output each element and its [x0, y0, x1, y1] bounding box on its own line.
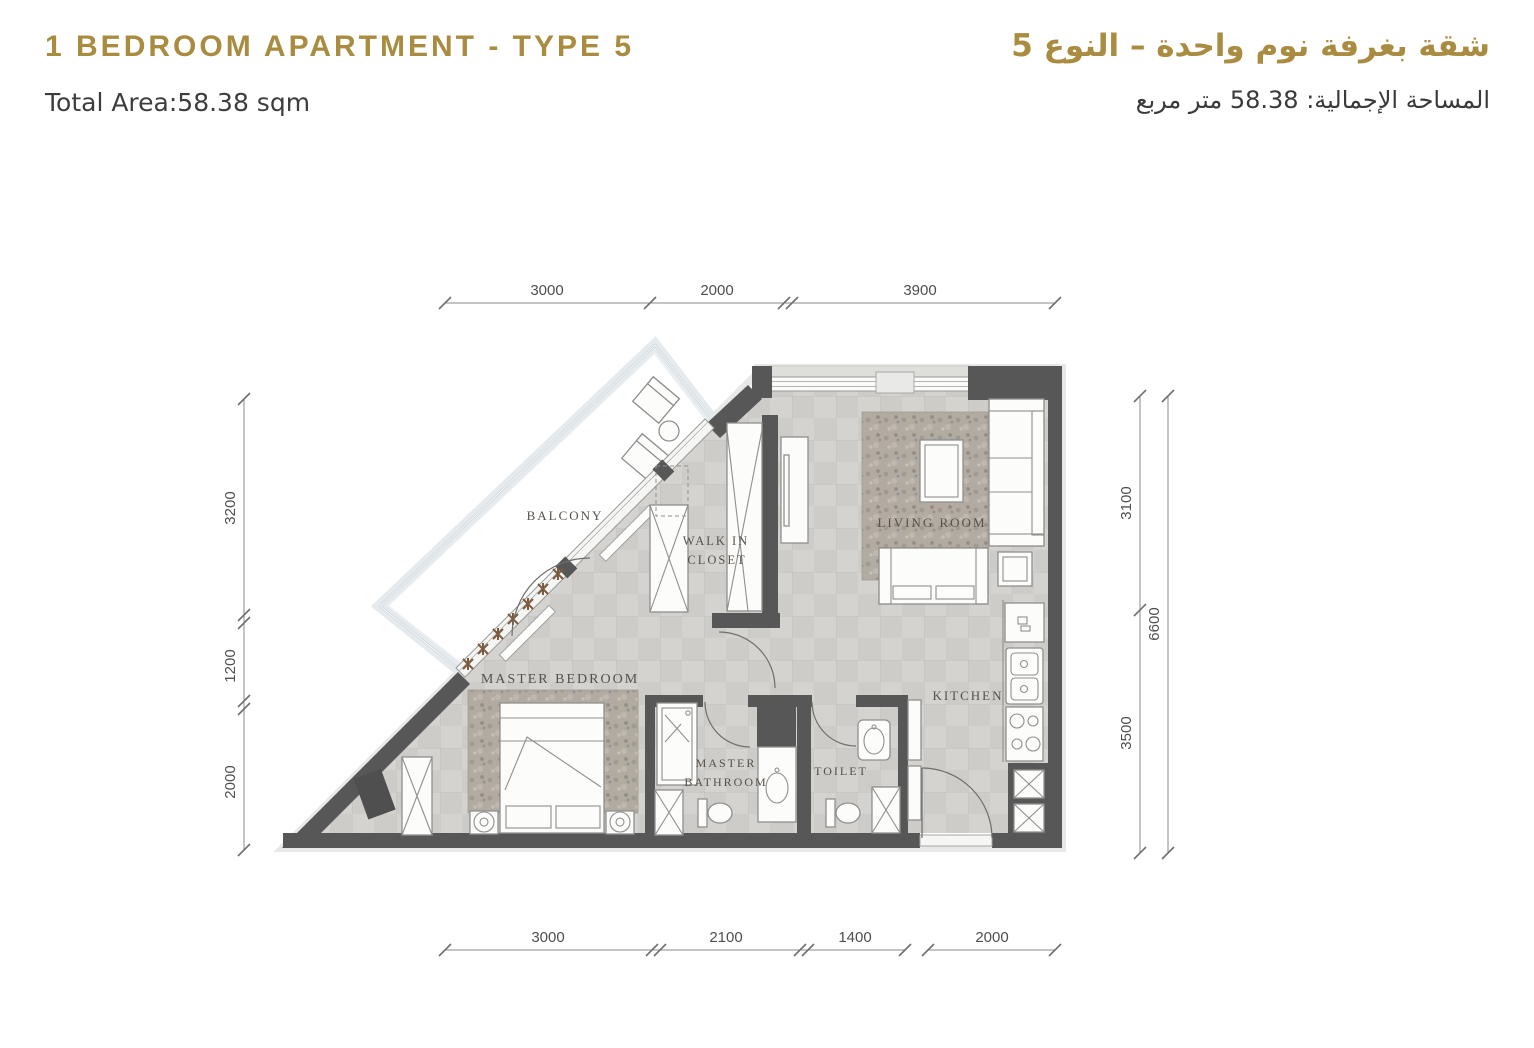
dimension-top: 3000 2000 3900 [439, 282, 1061, 309]
shower [657, 703, 697, 785]
dim-right-6600: 6600 [1146, 607, 1163, 640]
dim-bottom-2100: 2100 [709, 929, 742, 946]
dim-right-3500: 3500 [1118, 716, 1135, 749]
dim-bottom-2000: 2000 [975, 929, 1008, 946]
sofa-right [989, 399, 1044, 546]
label-master-bathroom: MASTER [696, 756, 757, 770]
stove [1006, 707, 1043, 761]
label-toilet: TOILET [814, 764, 868, 778]
toilet-bowl [836, 803, 860, 823]
dim-bottom-1400: 1400 [838, 929, 871, 946]
sofa-bottom [879, 548, 988, 604]
dim-top-2000: 2000 [700, 282, 733, 299]
dim-right-3100: 3100 [1118, 486, 1135, 519]
dim-left-3200: 3200 [222, 491, 239, 524]
toilet-tank [826, 799, 835, 827]
label-walk-in-closet: WALK IN [683, 534, 749, 548]
label-living-room: LIVING ROOM [877, 515, 986, 530]
label-walk-in-closet: CLOSET [687, 553, 746, 567]
label-master-bedroom: MASTER BEDROOM [481, 672, 639, 687]
balcony-table [659, 421, 679, 441]
toilet-tank [698, 799, 707, 827]
label-kitchen: KITCHEN [932, 688, 1003, 703]
tall-cabinet [908, 766, 921, 820]
tall-cabinet [908, 700, 921, 760]
tv [784, 455, 789, 526]
label-balcony: BALCONY [527, 508, 604, 523]
dimension-left: 3200 1200 2000 [222, 393, 250, 856]
toilet-bowl [708, 803, 732, 823]
bed [500, 703, 604, 833]
dim-top-3000: 3000 [530, 282, 563, 299]
dim-left-1200: 1200 [222, 649, 239, 682]
label-master-bathroom: BATHROOM [684, 775, 767, 789]
dim-left-2000: 2000 [222, 765, 239, 798]
dimension-bottom: 3000 2100 1400 2000 [439, 929, 1061, 956]
dim-top-3900: 3900 [903, 282, 936, 299]
floor-plan-page: 1 BEDROOM APARTMENT - TYPE 5 Total Area:… [0, 0, 1534, 1048]
dim-bottom-3000: 3000 [531, 929, 564, 946]
balcony-chair [633, 377, 680, 423]
dimension-right: 3100 3500 6600 [1118, 390, 1174, 859]
floor-plan: BALCONY WALK IN CLOSET LIVING ROOM MASTE… [0, 0, 1534, 1048]
coffee-table [920, 440, 963, 502]
kitchen-cabinet [1005, 603, 1044, 642]
